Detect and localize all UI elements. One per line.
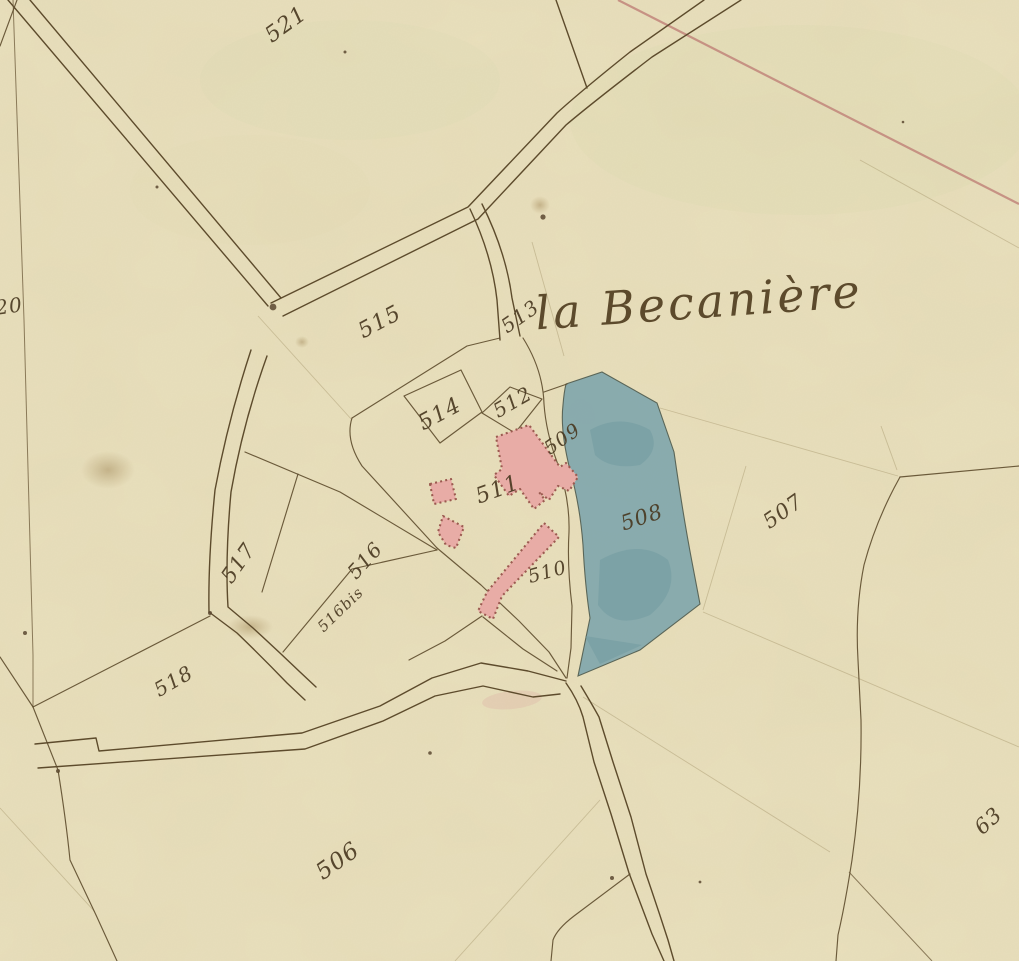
parcel-label-520-partial: 20 <box>0 292 24 320</box>
cadastral-map: la Becanière 521205155135145125095115105… <box>0 0 1019 961</box>
cadastral-map-svg: la Becanière 521205155135145125095115105… <box>0 0 1019 961</box>
